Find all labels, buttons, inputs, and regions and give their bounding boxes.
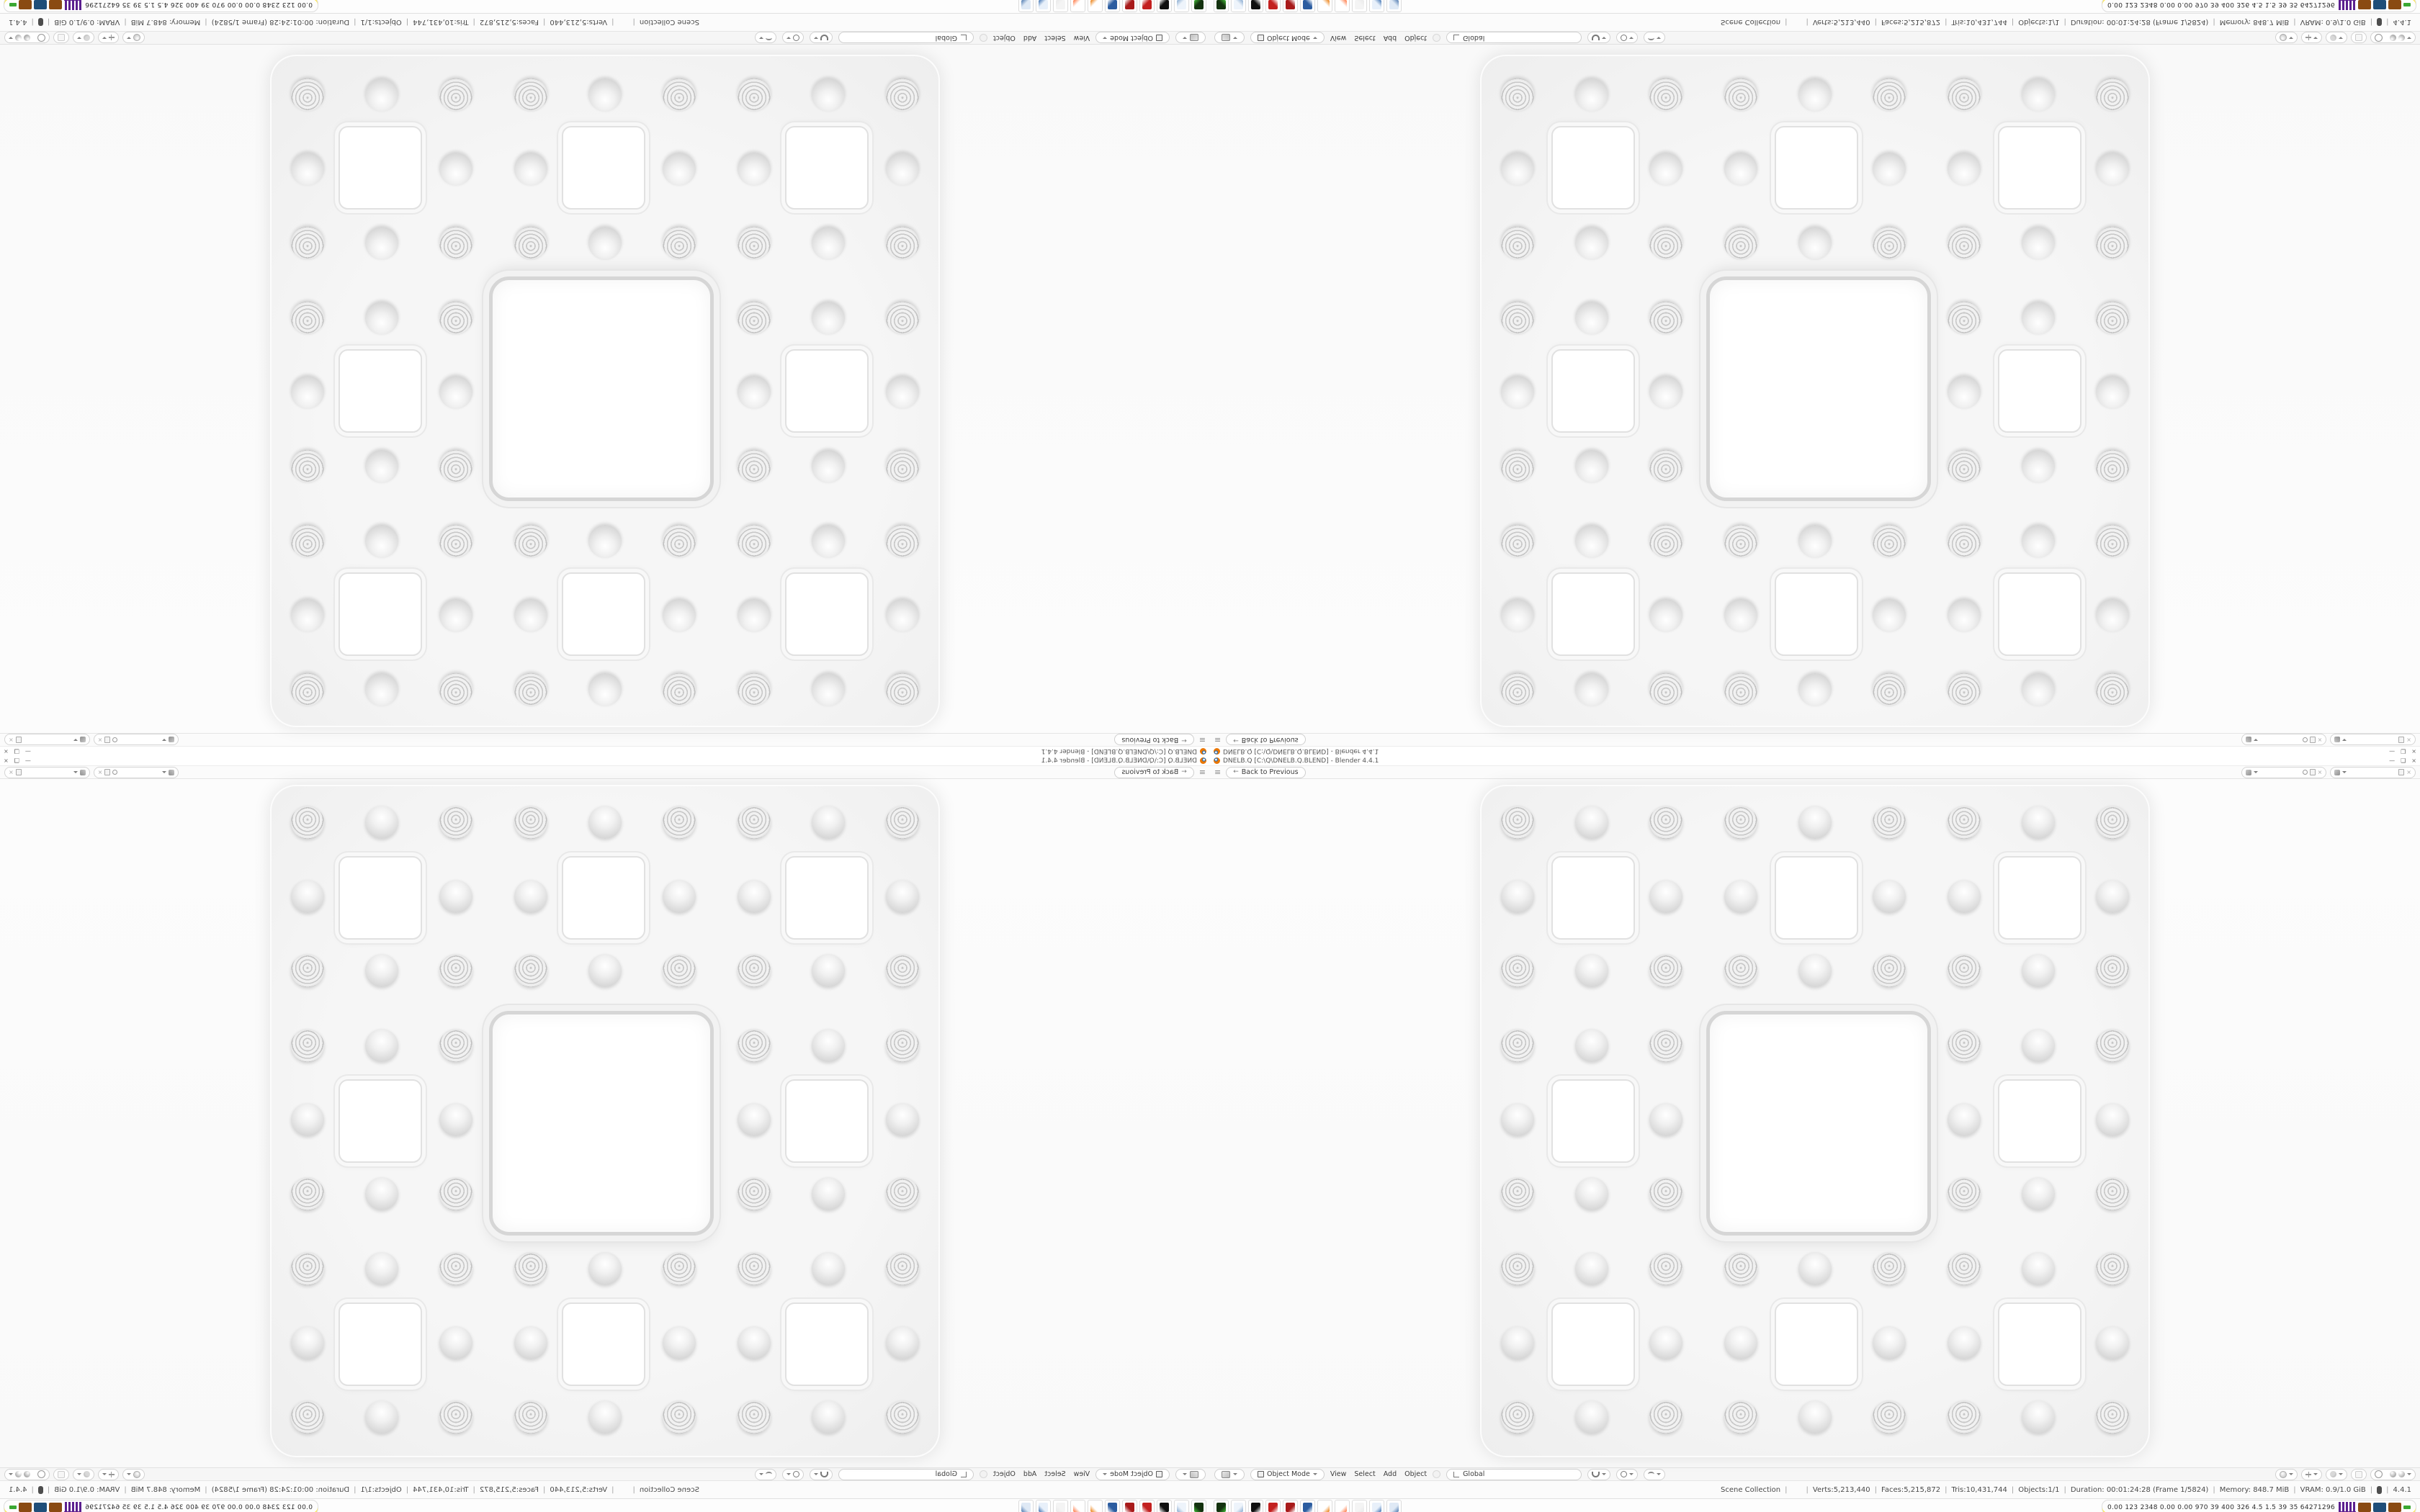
red-grid-app[interactable]	[1139, 1500, 1155, 1512]
shading-wireframe-icon[interactable]	[37, 34, 45, 42]
stat-value: Duration: 00:01:24:28 (Frame 1/5824)	[212, 1486, 349, 1494]
delete-scene-icon[interactable]: ×	[98, 737, 103, 743]
system-monitor-app[interactable]	[1214, 0, 1229, 12]
separator: |	[2370, 1486, 2372, 1494]
sponge-hole	[365, 1029, 398, 1062]
sponge-hole	[812, 302, 845, 335]
editor-type-button[interactable]	[1214, 32, 1245, 44]
scene-name-field[interactable]	[120, 769, 160, 775]
terminal-app[interactable]	[1248, 0, 1263, 12]
proportional-falloff-dropdown[interactable]	[1644, 32, 1665, 44]
back-to-previous-button[interactable]: ← Back to Previous	[1226, 767, 1305, 778]
transform-orientation-dropdown[interactable]: Global	[1446, 1469, 1582, 1480]
delete-scene-icon[interactable]: ×	[98, 770, 103, 775]
xray-toggle[interactable]	[53, 1469, 69, 1480]
pc-app[interactable]	[1036, 0, 1051, 12]
object-visibility-dropdown[interactable]	[2275, 32, 2298, 44]
red-grid-app-2[interactable]	[1283, 0, 1298, 12]
editor-type-button[interactable]	[1175, 1469, 1206, 1480]
blender-app[interactable]	[1317, 1500, 1332, 1512]
calculator-app[interactable]	[1018, 1500, 1034, 1512]
sponge-hole	[514, 78, 547, 112]
menu-view[interactable]: View	[1074, 1470, 1090, 1478]
ghost-slot[interactable]	[1352, 1500, 1367, 1512]
ghost-slot[interactable]	[1352, 0, 1367, 12]
chevron-down-icon	[1629, 37, 1633, 39]
sponge-hole	[291, 1177, 324, 1210]
brown-tray-icon-2[interactable]	[19, 1503, 32, 1512]
3d-viewport[interactable]	[0, 45, 1210, 733]
minimize-button[interactable]: —	[2389, 758, 2395, 764]
overlays-toggle[interactable]	[73, 1469, 94, 1480]
system-monitor-app[interactable]	[1191, 0, 1206, 12]
minimize-button[interactable]: —	[25, 749, 31, 755]
brown-tray-icon-2[interactable]	[2388, 0, 2401, 9]
chevron-down-icon	[102, 1473, 107, 1475]
castle-widget-icon[interactable]	[64, 0, 81, 11]
window-title: DNELB.Q [C:\Q\DNELB.Q.BLEND] - Blender 4…	[1223, 748, 1379, 755]
sponge-hole	[2096, 525, 2129, 558]
sponge-hole	[738, 1400, 771, 1434]
sponge-square-hole	[1551, 572, 1635, 656]
mode-dropdown[interactable]: Object Mode	[1250, 1469, 1325, 1480]
red-grid-app[interactable]	[1139, 0, 1155, 12]
notepad-app[interactable]	[1174, 0, 1189, 12]
sponge-hole	[1724, 880, 1757, 913]
close-button[interactable]: ×	[4, 749, 9, 755]
menu-add[interactable]: Add	[1384, 1470, 1397, 1478]
castle-widget-icon[interactable]	[2339, 0, 2356, 11]
sponge-hole	[1873, 599, 1906, 632]
delete-view-layer-icon[interactable]: ×	[2406, 770, 2411, 775]
terminal-app[interactable]	[1157, 0, 1172, 12]
green-tray-icon[interactable]	[2403, 1506, 2411, 1509]
new-view-layer-icon[interactable]	[16, 769, 22, 775]
firefox-app[interactable]	[1335, 1500, 1350, 1512]
object-visibility-dropdown[interactable]	[2275, 1469, 2298, 1480]
sponge-hole	[2096, 1326, 2129, 1359]
snapping-toggle[interactable]	[810, 32, 833, 44]
stat-value: Tris:10,431,744	[1951, 19, 2007, 27]
sponge-hole	[439, 227, 472, 260]
menger-sponge	[270, 55, 940, 727]
system-tray[interactable]: 0.00 123 2348 0.00 0.00 970 39 400 326 4…	[4, 0, 318, 12]
sponge-hole	[365, 525, 398, 558]
minimize-button[interactable]: —	[25, 758, 31, 764]
blender-window: DNELB.Q [C:\Q\DNELB.Q.BLEND] - Blender 4…	[0, 756, 1210, 1512]
chevron-down-icon	[759, 1473, 763, 1475]
scene-selector[interactable]: ×	[2241, 734, 2327, 746]
calculator-app-icon	[1389, 1503, 1399, 1512]
transform-pivot-icon[interactable]	[980, 1470, 987, 1478]
pc-app[interactable]	[1036, 1500, 1051, 1512]
sponge-hole	[1501, 806, 1534, 839]
brown-tray-icon[interactable]	[49, 1503, 62, 1512]
delete-scene-icon[interactable]: ×	[2318, 770, 2323, 775]
sponge-hole	[812, 78, 845, 112]
pin-icon[interactable]	[2303, 737, 2308, 742]
transform-orientation-dropdown[interactable]: Global	[838, 1469, 974, 1480]
scene-selector[interactable]: ×	[94, 767, 179, 778]
pin-icon[interactable]	[2303, 770, 2308, 775]
shading-rendered-icon[interactable]	[15, 1471, 22, 1477]
sponge-square-hole	[339, 856, 422, 940]
chevron-down-icon	[1657, 37, 1661, 39]
menu-object[interactable]: Object	[1404, 34, 1427, 42]
calculator-app[interactable]	[1386, 1500, 1402, 1512]
system-monitor-app-icon	[1216, 1503, 1226, 1512]
menu-select[interactable]: Select	[1354, 1470, 1375, 1478]
back-arrow-icon: ←	[1181, 769, 1187, 775]
transform-pivot-icon[interactable]	[980, 34, 987, 42]
separator: |	[1806, 19, 1809, 27]
system-tray[interactable]: 0.00 123 2348 0.00 0.00 970 39 400 326 4…	[2102, 1500, 2416, 1512]
view-layer-icon	[80, 770, 86, 775]
ghost-slot[interactable]	[1053, 0, 1068, 12]
notepad-app[interactable]	[1231, 1500, 1246, 1512]
sponge-center-hole	[489, 1011, 714, 1236]
gizmos-toggle[interactable]	[98, 32, 119, 44]
chevron-down-icon	[1233, 1473, 1237, 1475]
object-visibility-dropdown[interactable]	[122, 1469, 145, 1480]
scene-name-field[interactable]	[2260, 769, 2300, 775]
menu-select[interactable]: Select	[1354, 34, 1375, 42]
overlays-toggle[interactable]	[2326, 32, 2347, 44]
sponge-hole	[886, 376, 919, 409]
blue-tray-icon[interactable]	[34, 1503, 47, 1512]
sponge-hole	[886, 1400, 919, 1434]
new-view-layer-icon[interactable]	[16, 737, 22, 743]
viewport-header-right	[4, 32, 145, 44]
proportional-falloff-dropdown[interactable]	[755, 1469, 776, 1480]
ghost-slot[interactable]	[1053, 1500, 1068, 1512]
sponge-hole	[1798, 954, 1832, 987]
delete-view-layer-icon[interactable]: ×	[2406, 737, 2411, 743]
hamburger-menu-icon[interactable]: ≡	[1214, 768, 1221, 776]
red-grid-app[interactable]	[1265, 1500, 1281, 1512]
scene-selector[interactable]: ×	[2241, 767, 2327, 778]
floppy-disk-app[interactable]	[1105, 0, 1120, 12]
system-tray[interactable]: 0.00 123 2348 0.00 0.00 970 39 400 326 4…	[2102, 0, 2416, 12]
sponge-hole	[1798, 525, 1832, 558]
blender-app[interactable]	[1317, 0, 1332, 12]
shading-wireframe-icon[interactable]	[37, 1470, 45, 1478]
shading-rendered-icon[interactable]	[15, 35, 22, 41]
sponge-hole	[1501, 673, 1534, 706]
object-visibility-dropdown[interactable]	[122, 32, 145, 44]
sponge-hole	[291, 1326, 324, 1359]
hamburger-menu-icon[interactable]: ≡	[1214, 736, 1221, 744]
delete-view-layer-icon[interactable]: ×	[9, 770, 14, 775]
gizmos-toggle[interactable]	[2301, 32, 2322, 44]
view-layer-name-field[interactable]	[24, 737, 71, 743]
shading-material-icon[interactable]	[2390, 35, 2396, 41]
sponge-hole	[1948, 153, 1981, 186]
red-grid-app-2[interactable]	[1122, 0, 1137, 12]
overlays-toggle[interactable]	[73, 32, 94, 44]
sponge-hole	[1873, 1400, 1906, 1434]
sponge-square-hole	[785, 856, 869, 940]
statusbar: Scene Collection | | Verts:5,213,440|Fac…	[0, 14, 1210, 32]
3d-viewport[interactable]	[0, 779, 1210, 1467]
sponge-hole	[1948, 1252, 1981, 1285]
sponge-hole	[1798, 806, 1832, 839]
floppy-disk-app[interactable]	[1105, 1500, 1120, 1512]
new-scene-icon[interactable]	[104, 737, 110, 743]
view-layer-selector[interactable]: ×	[2330, 767, 2416, 778]
blender-app[interactable]	[1088, 1500, 1103, 1512]
sponge-hole	[1948, 302, 1981, 335]
gizmos-toggle[interactable]	[2301, 1469, 2322, 1480]
scene-name-field[interactable]	[120, 737, 160, 743]
minimize-button[interactable]: —	[2389, 749, 2395, 755]
editor-type-button[interactable]	[1175, 32, 1206, 44]
transform-orientation-dropdown[interactable]: Global	[1446, 32, 1582, 44]
xray-toggle[interactable]	[2351, 32, 2367, 44]
brown-tray-icon[interactable]	[2358, 0, 2371, 9]
pin-icon[interactable]	[112, 737, 117, 742]
menu-add[interactable]: Add	[1023, 1470, 1036, 1478]
sponge-square-hole	[785, 349, 869, 433]
menu-object[interactable]: Object	[993, 1470, 1016, 1478]
terminal-app[interactable]	[1157, 1500, 1172, 1512]
view-layer-selector[interactable]: ×	[2330, 734, 2416, 746]
xray-toggle[interactable]	[53, 32, 69, 44]
mode-dropdown[interactable]: Object Mode	[1095, 32, 1170, 44]
3d-viewport[interactable]	[1210, 779, 2420, 1467]
proportional-falloff-dropdown[interactable]	[755, 32, 776, 44]
menger-sponge	[1480, 785, 2150, 1457]
system-monitor-app[interactable]	[1214, 1500, 1229, 1512]
green-tray-icon[interactable]	[9, 1506, 17, 1509]
topbar-right-controls: × ×	[4, 734, 179, 746]
pin-icon[interactable]	[112, 770, 117, 775]
topbar: ≡ ← Back to Previous ×	[0, 733, 1210, 746]
floppy-disk-app[interactable]	[1300, 1500, 1315, 1512]
maximize-button[interactable]: ❑	[14, 758, 19, 764]
delete-scene-icon[interactable]: ×	[2318, 737, 2323, 743]
menu-view[interactable]: View	[1074, 34, 1090, 42]
calculator-app-icon	[1021, 1503, 1031, 1512]
blue-tray-icon[interactable]	[34, 0, 47, 9]
shading-rendered-icon[interactable]	[2398, 1471, 2405, 1477]
xray-toggle[interactable]	[2351, 1469, 2367, 1480]
editor-type-button[interactable]	[1214, 1469, 1245, 1480]
proportional-editing-toggle[interactable]	[782, 1469, 804, 1480]
pc-app[interactable]	[1369, 0, 1384, 12]
proportional-editing-toggle[interactable]	[782, 32, 804, 44]
firefox-app[interactable]	[1335, 0, 1350, 12]
sponge-hole	[291, 1103, 324, 1136]
chevron-down-icon	[1629, 1473, 1633, 1475]
blender-logo-icon	[1214, 748, 1220, 755]
system-tray[interactable]: 0.00 123 2348 0.00 0.00 970 39 400 326 4…	[4, 1500, 318, 1512]
snapping-toggle[interactable]	[1587, 32, 1610, 44]
window-title: DNELB.Q [C:\Q\DNELB.Q.BLEND] - Blender 4…	[1223, 757, 1379, 765]
menu-add[interactable]: Add	[1023, 34, 1036, 42]
brown-tray-icon-2[interactable]	[19, 0, 32, 9]
sponge-hole	[738, 1252, 771, 1285]
separator: |	[354, 1486, 356, 1494]
falloff-curve-icon	[766, 1472, 772, 1477]
proportional-editing-toggle[interactable]	[1616, 32, 1638, 44]
sponge-hole	[1724, 1252, 1757, 1285]
orientation-icon	[1453, 35, 1459, 41]
blender-app-icon	[1090, 1503, 1100, 1512]
sponge-hole	[1575, 450, 1608, 483]
separator: |	[354, 19, 356, 27]
menu-object[interactable]: Object	[993, 34, 1016, 42]
view-layer-name-field[interactable]	[2349, 769, 2396, 775]
menu-add[interactable]: Add	[1384, 34, 1397, 42]
chevron-down-icon	[2339, 1473, 2343, 1475]
sponge-hole	[588, 673, 622, 706]
new-view-layer-icon[interactable]	[2398, 769, 2404, 775]
scene-selector[interactable]: ×	[94, 734, 179, 746]
firefox-app-icon	[1337, 0, 1347, 9]
new-scene-icon[interactable]	[104, 769, 110, 775]
scene-name-field[interactable]	[2260, 737, 2300, 743]
terminal-app-icon	[1160, 0, 1169, 9]
chevron-down-icon	[2289, 1473, 2293, 1475]
terminal-app[interactable]	[1248, 1500, 1263, 1512]
firefox-app[interactable]	[1070, 1500, 1085, 1512]
falloff-curve-icon	[1648, 1472, 1654, 1477]
notepad-app[interactable]	[1231, 0, 1246, 12]
new-view-layer-icon[interactable]	[2398, 737, 2404, 743]
quadrant-top-right: DNELB.Q [C:\Q\DNELB.Q.BLEND] - Blender 4…	[1210, 0, 2420, 756]
brown-tray-icon[interactable]	[49, 0, 62, 9]
brown-tray-icon[interactable]	[2358, 1503, 2371, 1512]
window-titlebar[interactable]: DNELB.Q [C:\Q\DNELB.Q.BLEND] - Blender 4…	[0, 746, 1210, 756]
hamburger-menu-icon[interactable]: ≡	[1199, 736, 1206, 744]
back-to-previous-button[interactable]: ← Back to Previous	[1114, 734, 1193, 746]
menu-object[interactable]: Object	[1404, 1470, 1427, 1478]
transform-pivot-icon[interactable]	[1433, 1470, 1440, 1478]
scene-icon	[2246, 737, 2251, 743]
overlays-icon	[84, 1471, 90, 1477]
close-button[interactable]: ×	[4, 758, 9, 764]
transform-orientation-dropdown[interactable]: Global	[838, 32, 974, 44]
stat-value: Verts:5,213,440	[550, 19, 607, 27]
sponge-hole	[439, 1029, 472, 1062]
blue-tray-icon[interactable]	[2373, 0, 2386, 9]
sponge-hole	[2096, 954, 2129, 987]
hamburger-menu-icon[interactable]: ≡	[1199, 768, 1206, 776]
statusbar: Scene Collection | | Verts:5,213,440|Fac…	[1210, 1480, 2420, 1498]
view-layer-name-field[interactable]	[2349, 737, 2396, 743]
close-button[interactable]: ×	[2411, 749, 2416, 755]
sponge-square-hole	[785, 1302, 869, 1386]
menger-sponge	[270, 785, 940, 1457]
menu-view[interactable]: View	[1330, 34, 1347, 42]
blue-tray-icon[interactable]	[2373, 1503, 2386, 1512]
delete-view-layer-icon[interactable]: ×	[9, 737, 14, 743]
overlays-toggle[interactable]	[2326, 1469, 2347, 1480]
new-scene-icon[interactable]	[2310, 737, 2316, 743]
shading-material-icon[interactable]	[24, 1471, 30, 1477]
red-grid-app[interactable]	[1265, 0, 1281, 12]
mode-dropdown[interactable]: Object Mode	[1250, 32, 1325, 44]
green-tray-icon[interactable]	[9, 3, 17, 6]
pc-app-icon	[1039, 0, 1048, 9]
back-to-previous-button[interactable]: ← Back to Previous	[1226, 734, 1305, 746]
firefox-app[interactable]	[1070, 0, 1085, 12]
snapping-toggle[interactable]	[810, 1469, 833, 1480]
sponge-hole	[1501, 954, 1534, 987]
viewport-menus: ViewSelectAddObject	[1330, 34, 1427, 42]
separator: |	[48, 19, 50, 27]
sponge-hole	[663, 599, 696, 632]
menu-select[interactable]: Select	[1044, 34, 1065, 42]
new-scene-icon[interactable]	[2310, 769, 2316, 775]
calculator-app-icon	[1389, 0, 1399, 9]
pc-app[interactable]	[1369, 1500, 1384, 1512]
sponge-square-hole	[1998, 349, 2081, 433]
mode-dropdown[interactable]: Object Mode	[1095, 1469, 1170, 1480]
proportional-editing-toggle[interactable]	[1616, 1469, 1638, 1480]
castle-widget-icon[interactable]	[64, 1502, 81, 1512]
maximize-button[interactable]: ❑	[14, 749, 19, 755]
sponge-hole	[812, 1029, 845, 1062]
window-titlebar[interactable]: DNELB.Q [C:\Q\DNELB.Q.BLEND] - Blender 4…	[1210, 756, 2420, 766]
green-tray-icon[interactable]	[2403, 3, 2411, 6]
menu-select[interactable]: Select	[1044, 1470, 1065, 1478]
maximize-button[interactable]: ❑	[2401, 749, 2406, 755]
notepad-app[interactable]	[1174, 1500, 1189, 1512]
brown-tray-icon-2[interactable]	[2388, 1503, 2401, 1512]
window-titlebar[interactable]: DNELB.Q [C:\Q\DNELB.Q.BLEND] - Blender 4…	[1210, 746, 2420, 756]
shading-rendered-icon[interactable]	[2398, 35, 2405, 41]
sponge-hole	[1724, 153, 1757, 186]
proportional-circle-icon	[1621, 35, 1627, 41]
separator: |	[1945, 19, 1947, 27]
floppy-disk-app[interactable]	[1300, 0, 1315, 12]
viewport-editor-icon	[1190, 35, 1198, 42]
sponge-hole	[812, 954, 845, 987]
shading-wireframe-icon[interactable]	[2375, 34, 2383, 42]
maximize-button[interactable]: ❑	[2401, 758, 2406, 764]
sponge-hole	[439, 525, 472, 558]
menu-view[interactable]: View	[1330, 1470, 1347, 1478]
blender-app[interactable]	[1088, 0, 1103, 12]
window-titlebar[interactable]: DNELB.Q [C:\Q\DNELB.Q.BLEND] - Blender 4…	[0, 756, 1210, 766]
view-layer-name-field[interactable]	[24, 769, 71, 775]
view-layer-selector[interactable]: ×	[4, 734, 90, 746]
snapping-toggle[interactable]	[1587, 1469, 1610, 1480]
back-to-previous-button[interactable]: ← Back to Previous	[1114, 767, 1193, 778]
castle-widget-icon[interactable]	[2339, 1502, 2356, 1512]
shading-material-icon[interactable]	[2390, 1471, 2396, 1477]
3d-viewport[interactable]	[1210, 45, 2420, 733]
calculator-app[interactable]	[1386, 0, 1402, 12]
gizmos-toggle[interactable]	[98, 1469, 119, 1480]
sponge-hole	[738, 376, 771, 409]
system-monitor-app[interactable]	[1191, 1500, 1206, 1512]
sponge-hole	[1798, 1400, 1832, 1434]
red-grid-app-2[interactable]	[1122, 1500, 1137, 1512]
proportional-falloff-dropdown[interactable]	[1644, 1469, 1665, 1480]
shading-material-icon[interactable]	[24, 35, 30, 41]
gizmo-icon	[109, 35, 115, 41]
red-grid-app-2[interactable]	[1283, 1500, 1298, 1512]
calculator-app[interactable]	[1018, 0, 1034, 12]
chevron-down-icon	[1183, 1473, 1187, 1475]
view-layer-selector[interactable]: ×	[4, 767, 90, 778]
shading-wireframe-icon[interactable]	[2375, 1470, 2383, 1478]
close-button[interactable]: ×	[2411, 758, 2416, 764]
transform-pivot-icon[interactable]	[1433, 34, 1440, 42]
